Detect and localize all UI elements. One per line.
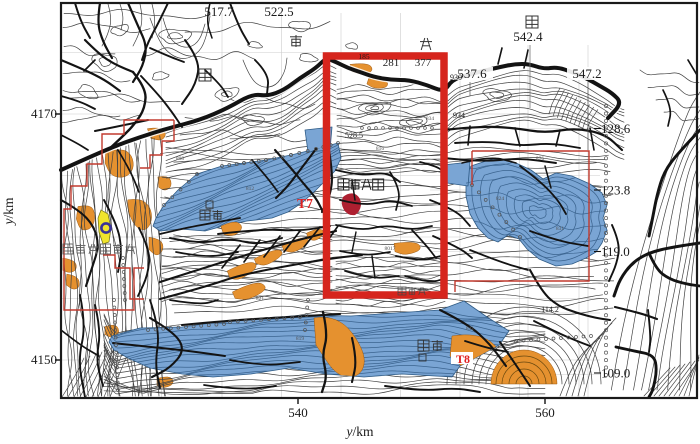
- svg-text:128.6: 128.6: [601, 121, 631, 136]
- svg-text:841: 841: [466, 326, 475, 332]
- svg-text:821: 821: [256, 296, 265, 302]
- svg-text:T8: T8: [456, 352, 470, 366]
- svg-text:805: 805: [206, 208, 215, 214]
- svg-text:826: 826: [536, 156, 545, 162]
- svg-text:560: 560: [535, 405, 555, 420]
- svg-text:4170: 4170: [31, 106, 57, 121]
- svg-text:831: 831: [556, 226, 565, 232]
- svg-text:y/km: y/km: [1, 197, 16, 227]
- svg-text:123.8: 123.8: [601, 183, 630, 198]
- svg-text:528.5: 528.5: [345, 131, 363, 140]
- svg-text:540: 540: [288, 405, 308, 420]
- svg-text:930: 930: [450, 73, 462, 82]
- svg-text:816: 816: [376, 146, 385, 152]
- svg-text:934: 934: [453, 111, 465, 120]
- svg-text:281: 281: [383, 57, 400, 69]
- svg-text:542.4: 542.4: [513, 29, 543, 44]
- svg-text:819: 819: [296, 336, 305, 342]
- svg-text:824: 824: [496, 196, 505, 202]
- svg-text:547.2: 547.2: [572, 66, 601, 81]
- svg-text:4150: 4150: [31, 352, 57, 367]
- svg-text:y/km: y/km: [344, 424, 374, 439]
- svg-text:834: 834: [426, 116, 435, 122]
- svg-text:8017: 8017: [385, 246, 396, 252]
- svg-text:808: 808: [176, 156, 185, 162]
- svg-text:517.7: 517.7: [204, 4, 234, 19]
- svg-text:109.0: 109.0: [601, 366, 630, 381]
- svg-text:114.2: 114.2: [541, 305, 559, 314]
- svg-text:522.5: 522.5: [264, 4, 293, 19]
- svg-text:185: 185: [358, 52, 370, 61]
- svg-text:377: 377: [415, 57, 432, 69]
- svg-text:119.0: 119.0: [601, 244, 630, 259]
- svg-text:T7: T7: [297, 196, 313, 211]
- svg-text:812: 812: [246, 186, 255, 192]
